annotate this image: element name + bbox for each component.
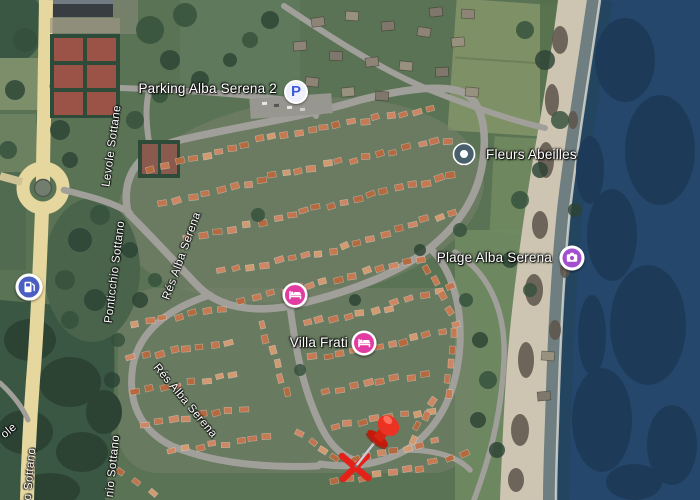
photo-attraction-icon[interactable] — [559, 245, 585, 271]
map-canvas[interactable]: Parking Alba Serena 2 P Fleurs Abeilles … — [0, 0, 700, 500]
poi-label-fleurs-abeilles[interactable]: Fleurs Abeilles — [486, 147, 577, 162]
place-pin-icon[interactable] — [451, 142, 477, 168]
street-label-levole-sottane: Levole Sottane — [100, 104, 123, 187]
street-label-res-alba-serena-2: Rés Alba Serena — [151, 362, 220, 440]
lodging-icon-unlabeled[interactable] — [282, 282, 308, 308]
poi-label-parking[interactable]: Parking Alba Serena 2 — [138, 81, 277, 96]
poi-label-villa-frati[interactable]: Villa Frati — [290, 335, 348, 350]
street-label-res-alba-serena-1: Rés Alba Serena — [161, 211, 204, 302]
street-label-nio-sottano: nio Sottano — [104, 434, 122, 498]
street-label-o-sottano: o Sottano — [22, 447, 39, 500]
gas-station-icon[interactable] — [15, 273, 43, 301]
parking-icon[interactable]: P — [284, 80, 308, 104]
street-label-ole: ole — [0, 421, 19, 441]
lodging-icon-villa-frati[interactable] — [351, 330, 377, 356]
street-label-ponticchio-sottano: Ponticchio Sottano — [103, 220, 127, 324]
poi-label-plage[interactable]: Plage Alba Serena — [437, 250, 552, 265]
